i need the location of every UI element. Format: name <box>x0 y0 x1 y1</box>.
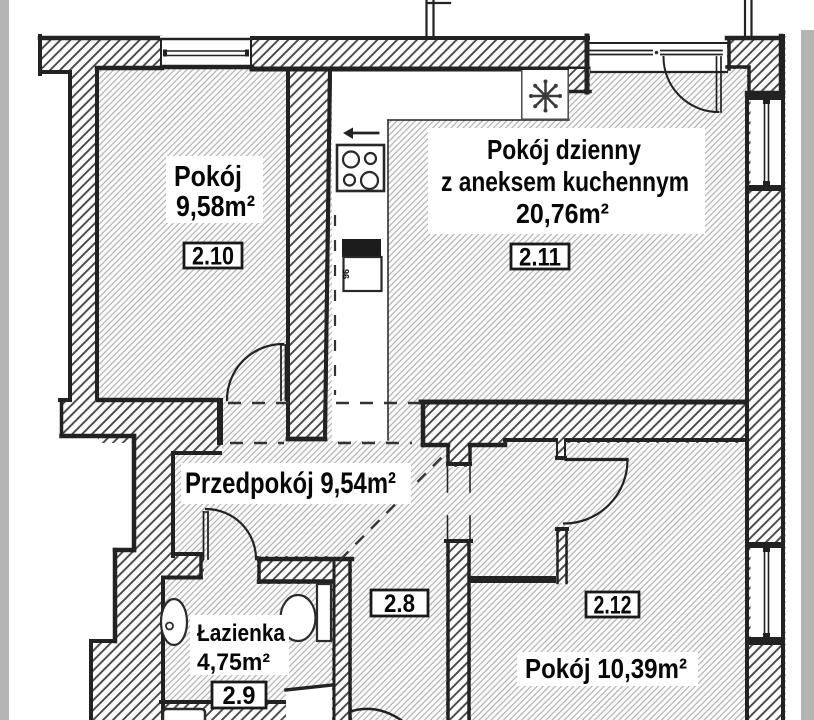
svg-text:Łazienka: Łazienka <box>197 620 285 647</box>
svg-text:2.8: 2.8 <box>384 590 415 618</box>
svg-text:Pokój 10,39m²: Pokój 10,39m² <box>525 653 687 684</box>
svg-text:Przedpokój 9,54m²: Przedpokój 9,54m² <box>185 467 396 500</box>
svg-text:9,58m²: 9,58m² <box>176 191 255 223</box>
svg-text:Pokój: Pokój <box>174 161 242 193</box>
svg-text:20,76m²: 20,76m² <box>516 198 609 229</box>
svg-text:Pokój dzienny: Pokój dzienny <box>487 134 641 165</box>
svg-text:4,75m²: 4,75m² <box>197 649 270 676</box>
svg-text:2.12: 2.12 <box>594 591 632 619</box>
svg-text:2.9: 2.9 <box>223 682 256 710</box>
svg-text:z aneksem kuchennym: z aneksem kuchennym <box>441 166 689 197</box>
svg-text:2.10: 2.10 <box>192 242 234 270</box>
svg-text:2.11: 2.11 <box>519 243 561 271</box>
svg-text:96: 96 <box>341 269 351 279</box>
